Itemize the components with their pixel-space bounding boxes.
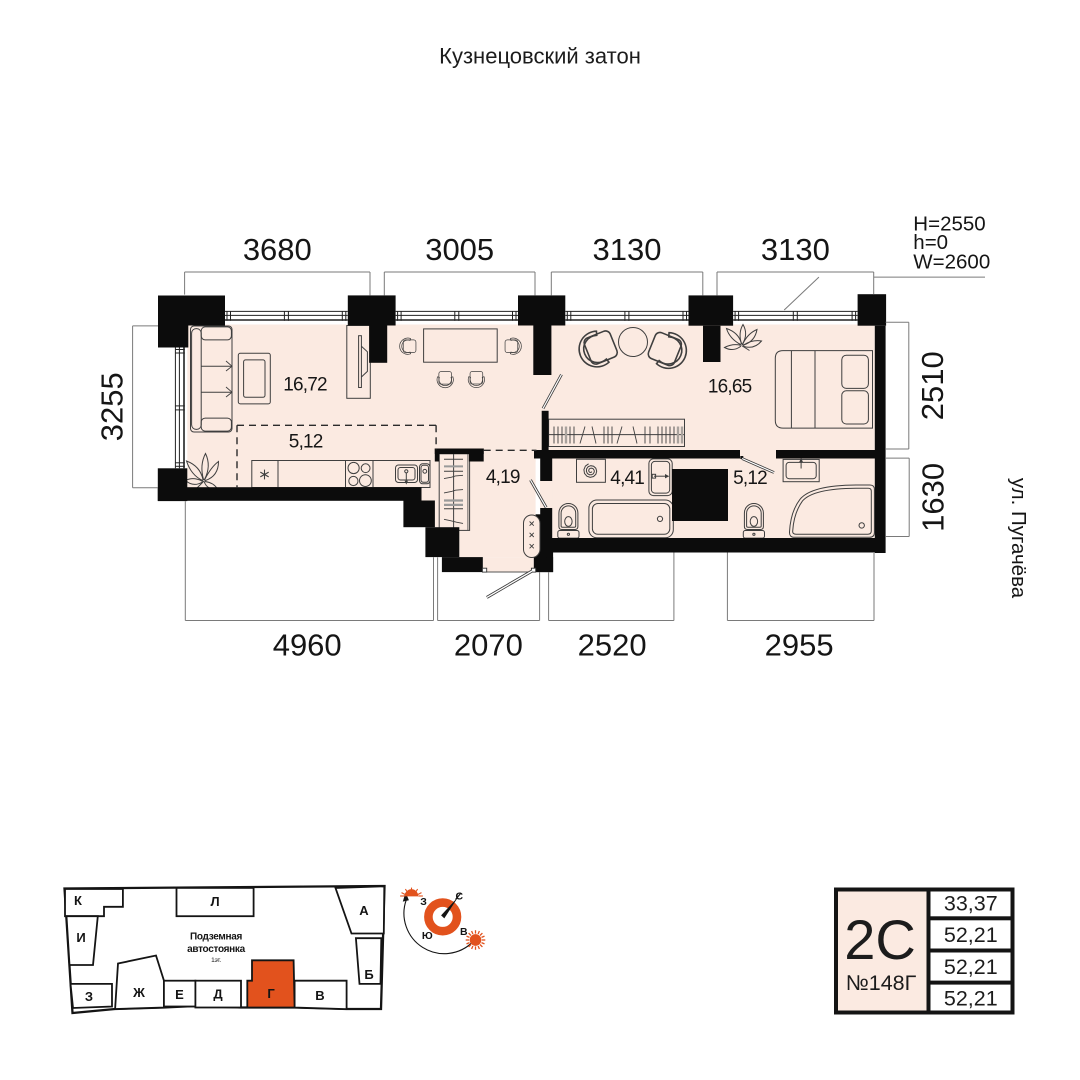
svg-text:16,72: 16,72 [283, 375, 327, 396]
svg-text:Л: Л [210, 894, 219, 909]
svg-text:Е: Е [175, 987, 184, 1002]
svg-text:3005: 3005 [425, 232, 494, 267]
svg-text:И: И [76, 930, 85, 945]
svg-text:4,19: 4,19 [486, 467, 520, 488]
svg-text:52,21: 52,21 [944, 955, 998, 979]
svg-text:3680: 3680 [243, 232, 312, 267]
svg-text:3255: 3255 [94, 372, 129, 441]
svg-text:З: З [85, 989, 93, 1004]
svg-text:5,12: 5,12 [733, 468, 767, 489]
svg-text:ул. Пугачёва: ул. Пугачёва [1007, 478, 1030, 599]
svg-text:Ж: Ж [132, 985, 145, 1000]
svg-text:3130: 3130 [593, 232, 662, 267]
svg-text:16,65: 16,65 [708, 377, 752, 398]
svg-text:Д: Д [213, 987, 223, 1002]
svg-text:2510: 2510 [915, 351, 950, 420]
svg-text:З: З [420, 896, 427, 908]
svg-text:33,37: 33,37 [944, 892, 998, 916]
svg-text:2070: 2070 [454, 628, 523, 663]
svg-text:автостоянка: автостоянка [187, 944, 246, 955]
svg-text:1630: 1630 [916, 463, 951, 532]
svg-text:2955: 2955 [765, 628, 834, 663]
svg-text:4960: 4960 [273, 628, 342, 663]
svg-text:Ю: Ю [422, 930, 433, 942]
svg-text:W=2600: W=2600 [913, 251, 990, 274]
svg-text:Кузнецовский затон: Кузнецовский затон [439, 44, 641, 69]
svg-text:2С: 2С [844, 908, 916, 971]
svg-text:К: К [74, 893, 82, 908]
svg-text:4,41: 4,41 [610, 468, 644, 489]
svg-text:А: А [359, 903, 369, 918]
svg-text:№148Г: №148Г [846, 971, 917, 995]
svg-text:3130: 3130 [761, 232, 830, 267]
svg-text:5,12: 5,12 [289, 432, 323, 453]
svg-text:Г: Г [267, 986, 275, 1001]
svg-text:2520: 2520 [578, 628, 647, 663]
svg-text:Б: Б [364, 967, 373, 982]
svg-text:В: В [315, 988, 324, 1003]
svg-text:52,21: 52,21 [944, 987, 998, 1011]
svg-text:С: С [456, 891, 464, 903]
svg-text:1эт.: 1эт. [211, 957, 221, 964]
svg-text:52,21: 52,21 [944, 923, 998, 947]
svg-text:Подземная: Подземная [190, 932, 243, 943]
